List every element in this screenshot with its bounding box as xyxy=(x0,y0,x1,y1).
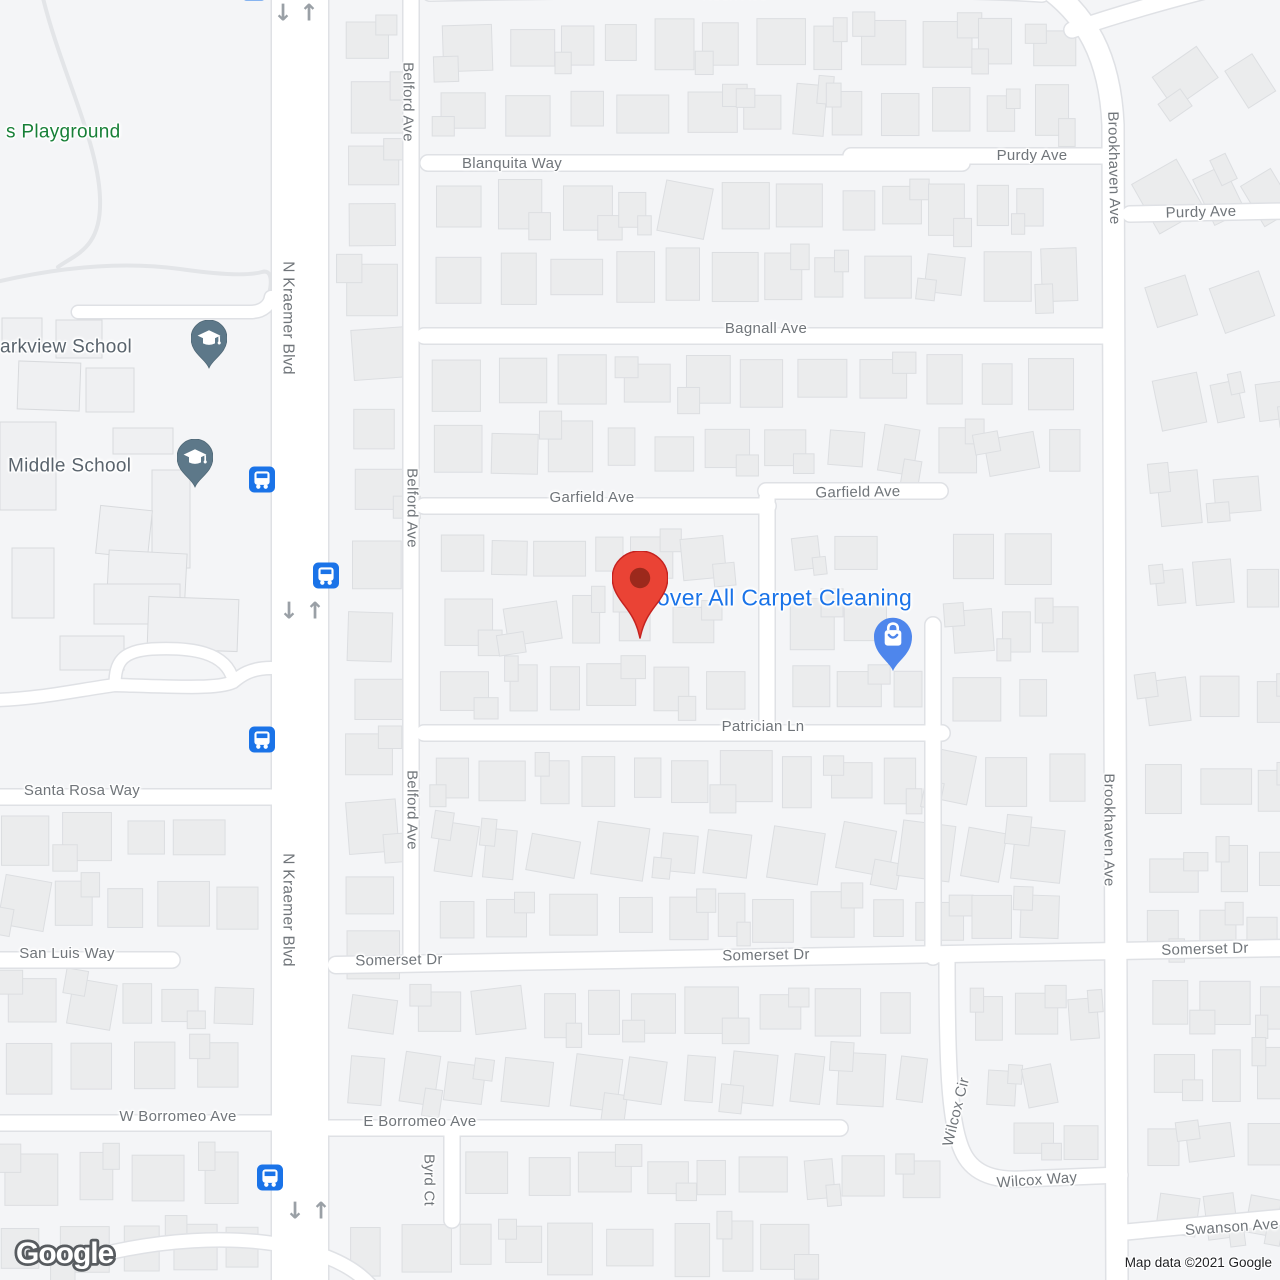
street-label-bagnall-ave: Bagnall Ave xyxy=(725,321,807,338)
building xyxy=(835,536,877,569)
building xyxy=(828,430,865,467)
building xyxy=(492,541,528,576)
building xyxy=(499,1219,517,1239)
trails-layer xyxy=(0,0,271,294)
building xyxy=(473,1058,495,1081)
building xyxy=(1064,1126,1098,1160)
building xyxy=(529,1158,570,1196)
building xyxy=(1045,985,1066,1007)
building xyxy=(71,1043,112,1089)
building xyxy=(1008,1065,1023,1085)
red-map-pin-icon xyxy=(612,551,668,640)
building xyxy=(719,1084,744,1114)
building xyxy=(1213,1050,1241,1102)
building xyxy=(1050,430,1080,472)
building xyxy=(158,881,210,926)
building xyxy=(548,1223,593,1275)
building xyxy=(511,30,555,67)
building xyxy=(881,94,919,136)
building xyxy=(63,968,89,996)
building xyxy=(526,833,581,878)
poi-label-carpet-cleaning-business[interactable]: Cover All Carpet Cleaning xyxy=(640,585,912,610)
park-trail xyxy=(0,265,271,294)
building xyxy=(501,1057,554,1106)
building xyxy=(1200,676,1239,716)
building xyxy=(757,19,806,65)
google-logo-text: Google xyxy=(16,1237,114,1270)
oneway-up-arrow-icon: ↑ xyxy=(305,601,324,624)
building xyxy=(1193,559,1235,606)
building xyxy=(430,785,446,807)
building xyxy=(833,18,847,42)
building xyxy=(943,602,964,626)
street-label-somerset-dr-west: Somerset Dr xyxy=(355,952,443,970)
building xyxy=(1145,765,1181,814)
building xyxy=(1225,54,1276,108)
school-pin-parkview[interactable] xyxy=(191,320,227,379)
building xyxy=(933,87,970,131)
street-label-belford-ave-2: Belford Ave xyxy=(403,468,420,548)
building xyxy=(812,556,827,575)
building xyxy=(826,83,841,107)
school-pin-icon xyxy=(177,439,213,493)
building xyxy=(753,900,794,943)
store-pin-carpet-cleaning[interactable] xyxy=(874,617,912,678)
building xyxy=(460,1224,491,1264)
building xyxy=(997,639,1011,661)
building xyxy=(354,409,394,449)
building xyxy=(539,411,561,439)
building xyxy=(794,1254,818,1279)
road xyxy=(1072,0,1240,30)
building xyxy=(499,358,546,403)
building xyxy=(346,877,394,914)
building xyxy=(103,1143,119,1169)
building xyxy=(1201,769,1252,804)
oneway-up-arrow-icon: ↑ xyxy=(299,3,318,26)
building xyxy=(1183,1080,1203,1101)
bus-stop-icon[interactable] xyxy=(249,467,275,498)
building xyxy=(589,990,620,1034)
street-label-koch-ave: Koch Ave xyxy=(702,0,768,2)
building xyxy=(0,1144,21,1172)
building xyxy=(351,326,410,380)
building xyxy=(842,1156,884,1196)
building xyxy=(823,756,843,775)
building xyxy=(695,51,713,74)
street-label-blanquita-way: Blanquita Way xyxy=(462,156,562,173)
building xyxy=(1006,89,1020,108)
building xyxy=(558,355,606,404)
building xyxy=(1147,462,1170,493)
building xyxy=(793,666,830,707)
building xyxy=(655,19,694,70)
building xyxy=(703,830,752,879)
building xyxy=(896,1056,927,1103)
building xyxy=(1004,814,1032,845)
building xyxy=(132,1155,184,1201)
building xyxy=(617,252,655,303)
building xyxy=(798,359,847,397)
building xyxy=(479,761,525,801)
building xyxy=(1259,852,1280,885)
building xyxy=(672,761,708,803)
building xyxy=(1152,372,1206,431)
building xyxy=(173,820,225,855)
building xyxy=(534,541,586,576)
building xyxy=(970,988,983,1012)
building xyxy=(1255,381,1280,421)
building xyxy=(739,1157,787,1192)
street-label-belford-ave-3: Belford Ave xyxy=(403,770,420,850)
building xyxy=(441,535,483,571)
building xyxy=(1134,672,1158,699)
building xyxy=(776,184,822,227)
map-attribution: Map data ©2021 Google xyxy=(1125,1255,1272,1271)
street-label-brookhaven-ave-south: Brookhaven Ave xyxy=(1100,773,1117,886)
building xyxy=(1145,275,1198,328)
building xyxy=(927,355,962,404)
building xyxy=(432,117,454,136)
building xyxy=(829,1042,854,1072)
building xyxy=(655,437,694,471)
building xyxy=(337,254,362,282)
oneway-up-arrow-icon: ↑ xyxy=(311,1201,330,1224)
building xyxy=(972,431,1000,455)
destination-marker[interactable] xyxy=(612,551,668,645)
building xyxy=(555,52,571,74)
street-label-somerset-dr-east: Somerset Dr xyxy=(1161,941,1249,960)
building xyxy=(436,257,481,303)
building xyxy=(615,1145,641,1167)
building xyxy=(1206,502,1230,523)
building xyxy=(841,883,863,908)
building xyxy=(1035,284,1054,314)
building xyxy=(789,988,809,1007)
building xyxy=(736,455,758,476)
bus-stop-icon[interactable] xyxy=(241,0,267,6)
building xyxy=(515,892,535,913)
building xyxy=(791,244,810,270)
building xyxy=(566,1023,581,1047)
building xyxy=(491,433,538,474)
building xyxy=(496,632,526,657)
building xyxy=(896,1154,914,1174)
building xyxy=(440,902,474,938)
building xyxy=(582,757,615,807)
street-label-san-luis-way: San Luis Way xyxy=(19,946,115,963)
building xyxy=(1011,214,1024,235)
building xyxy=(190,1034,210,1058)
building xyxy=(53,845,77,871)
building xyxy=(972,895,1011,938)
building xyxy=(1247,569,1278,607)
building xyxy=(0,970,23,994)
building xyxy=(617,95,669,133)
building xyxy=(953,678,1001,721)
street-label-garfield-ave-east: Garfield Ave xyxy=(815,484,900,502)
building xyxy=(1190,1010,1215,1034)
building xyxy=(893,352,916,373)
street-label-purdy-ave-east: Purdy Ave xyxy=(1165,204,1236,222)
building xyxy=(638,216,652,235)
building xyxy=(2,816,49,865)
building xyxy=(608,428,635,465)
building xyxy=(506,96,550,136)
building xyxy=(1153,981,1188,1025)
building xyxy=(135,1042,175,1089)
building xyxy=(1252,1038,1266,1066)
bus-stop-icon[interactable] xyxy=(257,1165,283,1196)
building xyxy=(1042,1143,1062,1160)
building xyxy=(853,12,875,36)
building xyxy=(685,1055,716,1103)
building xyxy=(1021,1064,1058,1108)
building xyxy=(529,213,551,240)
building xyxy=(353,541,402,589)
school-pin-middle-school[interactable] xyxy=(177,439,213,498)
building xyxy=(834,250,848,272)
bus-stop-icon[interactable] xyxy=(249,727,275,758)
street-label-purdy-ave-west: Purdy Ave xyxy=(997,148,1068,165)
building xyxy=(619,897,652,932)
school-building xyxy=(12,548,54,618)
street-label-belford-ave-1: Belford Ave xyxy=(399,62,416,142)
building xyxy=(1149,564,1165,584)
building xyxy=(1050,754,1085,801)
building xyxy=(615,357,638,378)
building xyxy=(676,1183,696,1201)
poi-label-playground[interactable]: s Playground xyxy=(6,123,121,144)
building xyxy=(737,922,750,946)
building xyxy=(1087,989,1103,1012)
building xyxy=(1209,271,1274,334)
street-label-garfield-ave-west: Garfield Ave xyxy=(549,490,634,507)
oneway-down-arrow-icon: ↓ xyxy=(273,3,292,26)
building xyxy=(348,995,397,1035)
building xyxy=(736,89,755,108)
oneway-down-arrow-icon: ↓ xyxy=(285,1201,304,1224)
building xyxy=(592,586,605,612)
building xyxy=(1028,359,1073,410)
school-building xyxy=(113,428,173,454)
poi-label-parkview-school[interactable]: arkview School xyxy=(0,338,132,359)
street-label-patrician-ln: Patrician Ln xyxy=(722,719,805,736)
building xyxy=(0,906,14,937)
building xyxy=(1148,1129,1179,1166)
building xyxy=(782,757,811,808)
google-logo[interactable]: Google xyxy=(12,1232,152,1274)
building xyxy=(1184,853,1208,871)
building xyxy=(214,987,254,1024)
street-label-byrd-ct: Byrd Ct xyxy=(420,1154,437,1206)
school-building xyxy=(86,368,134,412)
building xyxy=(843,191,875,230)
building xyxy=(187,1011,205,1029)
building xyxy=(623,1057,667,1105)
building xyxy=(722,183,769,229)
street-label-w-borromeo-ave: W Borromeo Ave xyxy=(119,1109,236,1126)
building xyxy=(410,984,431,1006)
building xyxy=(1020,680,1047,716)
building xyxy=(591,821,650,881)
building xyxy=(1035,598,1053,623)
building xyxy=(826,1184,842,1206)
school-pin-icon xyxy=(191,320,227,374)
building xyxy=(717,1211,732,1239)
building xyxy=(81,873,99,897)
building xyxy=(550,667,579,710)
building xyxy=(198,1142,215,1170)
building xyxy=(793,454,814,474)
building xyxy=(471,985,526,1034)
building xyxy=(678,696,695,720)
building xyxy=(6,1043,52,1094)
building xyxy=(621,656,645,679)
building xyxy=(607,1229,653,1266)
building xyxy=(349,204,395,246)
building xyxy=(865,256,912,298)
street-label-e-borromeo-ave: E Borromeo Ave xyxy=(363,1114,476,1131)
building xyxy=(378,726,401,748)
building xyxy=(348,1056,385,1106)
building xyxy=(1225,902,1243,925)
building xyxy=(1005,534,1051,585)
building xyxy=(571,91,603,126)
building xyxy=(479,818,497,846)
building xyxy=(108,889,143,928)
building xyxy=(678,387,700,413)
building xyxy=(123,984,152,1024)
building xyxy=(474,698,498,719)
building xyxy=(815,989,860,1036)
building xyxy=(431,810,454,840)
building xyxy=(953,534,993,578)
building xyxy=(982,364,1012,404)
building xyxy=(657,180,713,239)
building xyxy=(740,360,782,408)
building xyxy=(433,56,458,82)
building xyxy=(713,562,737,587)
building xyxy=(1025,24,1046,43)
poi-label-middle-school[interactable]: Middle School xyxy=(8,457,131,478)
building xyxy=(675,1224,709,1277)
building xyxy=(505,656,519,681)
building xyxy=(605,25,636,61)
building xyxy=(1256,1015,1268,1038)
building xyxy=(635,758,661,797)
building xyxy=(660,529,681,552)
street-label-somerset-dr-center: Somerset Dr xyxy=(722,947,810,965)
building xyxy=(652,857,671,879)
bus-stop-icon[interactable] xyxy=(313,563,339,594)
building xyxy=(551,259,603,294)
building xyxy=(432,360,480,411)
school-building xyxy=(17,361,81,411)
building xyxy=(376,15,397,35)
building xyxy=(707,672,745,709)
building xyxy=(1248,1124,1280,1165)
building xyxy=(535,752,549,776)
building xyxy=(954,218,972,246)
building xyxy=(697,1160,725,1194)
building xyxy=(347,612,393,662)
building xyxy=(437,186,482,227)
building xyxy=(501,253,536,304)
building xyxy=(910,179,929,200)
street-label-n-kraemer-blvd-north: N Kraemer Blvd xyxy=(279,261,296,375)
building xyxy=(722,1018,749,1044)
building xyxy=(961,827,1007,882)
building xyxy=(623,1020,645,1042)
building xyxy=(434,425,482,472)
building xyxy=(1175,1120,1200,1142)
map-canvas[interactable]: Koch Ave Blanquita Way Purdy Ave Purdy A… xyxy=(0,0,1280,1280)
building xyxy=(984,252,1031,302)
building xyxy=(906,789,922,814)
street-label-n-kraemer-blvd-south: N Kraemer Blvd xyxy=(279,853,296,967)
building xyxy=(977,185,1008,225)
building xyxy=(1216,837,1229,862)
building xyxy=(1059,119,1076,147)
building xyxy=(710,785,736,813)
street-label-santa-rosa-way: Santa Rosa Way xyxy=(24,783,140,800)
building xyxy=(355,679,409,719)
building xyxy=(972,49,989,74)
building xyxy=(466,1152,508,1194)
building xyxy=(916,278,937,301)
building xyxy=(1013,886,1033,910)
building xyxy=(986,758,1027,807)
building xyxy=(550,894,598,935)
street-label-brookhaven-ave-north: Brookhaven Ave xyxy=(1104,111,1122,224)
oneway-down-arrow-icon: ↓ xyxy=(279,601,298,624)
building xyxy=(128,821,164,854)
building xyxy=(402,1225,451,1272)
shopping-bag-pin-icon xyxy=(874,617,912,673)
building xyxy=(767,826,826,885)
building xyxy=(712,252,758,301)
building xyxy=(697,889,716,912)
building xyxy=(874,900,904,937)
building xyxy=(881,993,911,1034)
building xyxy=(217,887,258,929)
building xyxy=(949,895,973,916)
building xyxy=(666,248,699,300)
building xyxy=(790,1054,825,1105)
